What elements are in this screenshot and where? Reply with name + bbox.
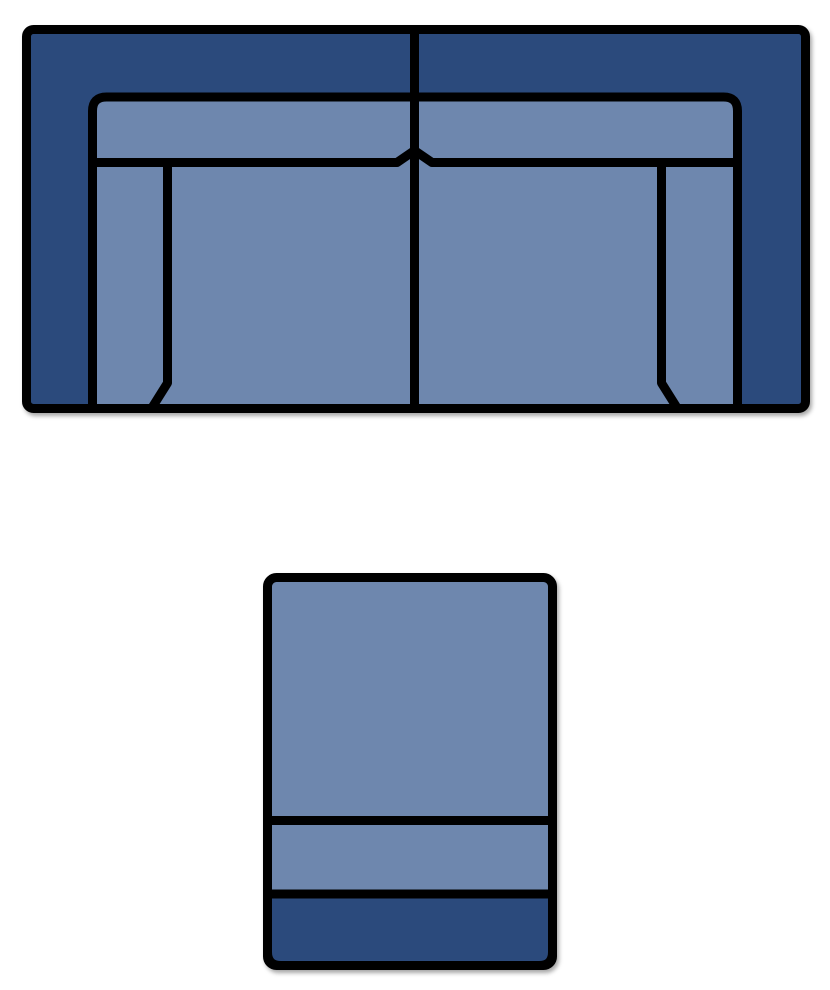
- chair-base: [268, 894, 553, 966]
- canvas: [0, 0, 830, 990]
- chair-top-view: [263, 578, 557, 966]
- furniture-diagram: [0, 0, 830, 990]
- sofa-top-view: [27, 25, 806, 413]
